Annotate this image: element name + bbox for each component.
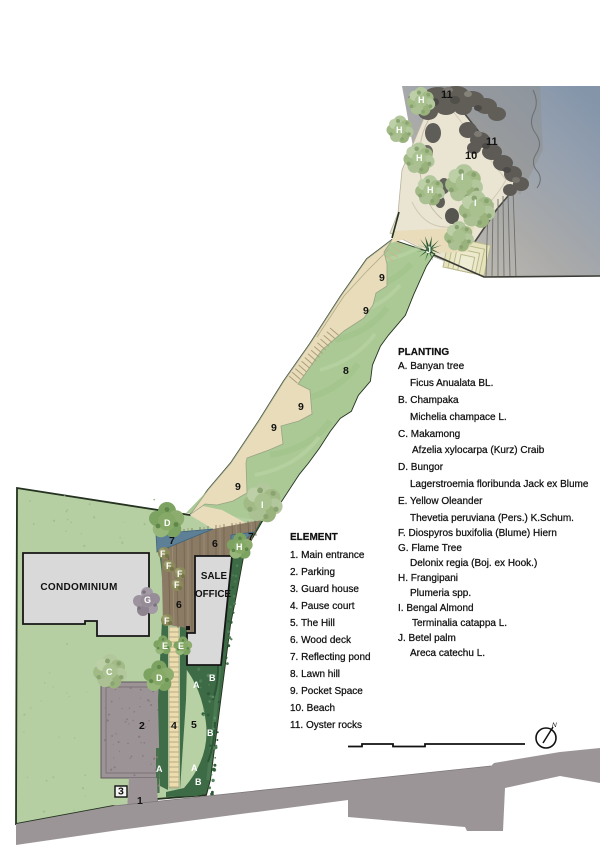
svg-text:I. Bengal Almond: I. Bengal Almond <box>398 603 474 614</box>
svg-text:D. Bungor: D. Bungor <box>398 462 444 473</box>
svg-text:SALE: SALE <box>201 571 228 582</box>
svg-text:A: A <box>193 680 200 690</box>
svg-text:E: E <box>178 641 184 651</box>
svg-text:1. Main entrance: 1. Main entrance <box>290 550 365 561</box>
svg-text:3. Guard house: 3. Guard house <box>290 584 359 595</box>
svg-text:C: C <box>106 667 113 677</box>
svg-text:H: H <box>427 185 434 195</box>
svg-text:11. Oyster rocks: 11. Oyster rocks <box>290 720 362 731</box>
svg-text:4. Pause court: 4. Pause court <box>290 601 355 612</box>
svg-text:H: H <box>418 95 425 105</box>
svg-text:I: I <box>474 198 477 208</box>
svg-text:A: A <box>156 764 163 774</box>
svg-text:B: B <box>207 728 214 738</box>
svg-text:E: E <box>162 641 168 651</box>
svg-text:7: 7 <box>169 535 175 547</box>
svg-text:Plumeria spp.: Plumeria spp. <box>410 588 471 599</box>
svg-text:8: 8 <box>343 365 349 377</box>
svg-text:F: F <box>174 580 180 590</box>
svg-text:Delonix regia (Boj. ex Hook.): Delonix regia (Boj. ex Hook.) <box>410 558 537 569</box>
svg-text:D: D <box>164 518 171 528</box>
svg-text:Areca catechu L.: Areca catechu L. <box>410 648 485 659</box>
svg-text:CONDOMINIUM: CONDOMINIUM <box>40 582 117 593</box>
svg-text:9: 9 <box>363 305 369 317</box>
svg-text:11: 11 <box>486 136 498 148</box>
svg-text:9: 9 <box>235 481 241 493</box>
svg-text:F: F <box>164 616 170 626</box>
svg-text:A. Banyan tree: A. Banyan tree <box>398 361 465 372</box>
svg-text:5: 5 <box>191 719 197 731</box>
svg-text:9. Pocket Space: 9. Pocket Space <box>290 686 363 697</box>
svg-text:5. The Hill: 5. The Hill <box>290 618 335 629</box>
svg-text:F: F <box>166 561 172 571</box>
svg-text:4: 4 <box>171 720 177 732</box>
svg-text:F. Diospyros buxifolia (Blume): F. Diospyros buxifolia (Blume) Hiern <box>398 528 557 539</box>
svg-text:G: G <box>144 595 151 605</box>
svg-text:6: 6 <box>212 538 218 550</box>
svg-text:H: H <box>416 153 423 163</box>
svg-text:B. Champaka: B. Champaka <box>398 395 459 406</box>
svg-text:11: 11 <box>441 89 453 101</box>
svg-text:J. Betel palm: J. Betel palm <box>398 633 456 644</box>
svg-text:Ficus Anualata BL.: Ficus Anualata BL. <box>410 378 493 389</box>
svg-text:Lagerstroemia floribunda Jack: Lagerstroemia floribunda Jack ex Blume <box>410 479 589 490</box>
svg-text:Thevetia peruviana (Pers.) K.S: Thevetia peruviana (Pers.) K.Schum. <box>410 513 574 524</box>
svg-text:I: I <box>461 172 464 182</box>
svg-text:D: D <box>156 673 163 683</box>
svg-text:6. Wood deck: 6. Wood deck <box>290 635 352 646</box>
svg-text:6: 6 <box>176 599 182 611</box>
svg-text:9: 9 <box>379 272 385 284</box>
svg-text:A: A <box>191 763 198 773</box>
svg-text:PLANTING: PLANTING <box>398 347 449 358</box>
svg-text:B: B <box>195 777 202 787</box>
svg-text:I: I <box>261 500 264 510</box>
svg-text:H: H <box>396 125 403 135</box>
svg-text:E. Yellow Oleander: E. Yellow Oleander <box>398 496 483 507</box>
svg-text:H: H <box>236 542 243 552</box>
svg-text:C. Makamong: C. Makamong <box>398 429 460 440</box>
svg-text:1: 1 <box>137 795 143 807</box>
svg-text:G. Flame Tree: G. Flame Tree <box>398 543 462 554</box>
svg-text:9: 9 <box>298 401 304 413</box>
svg-text:H. Frangipani: H. Frangipani <box>398 573 458 584</box>
svg-text:7. Reflecting pond: 7. Reflecting pond <box>290 652 371 663</box>
svg-text:10: 10 <box>465 150 477 162</box>
svg-text:Afzelia xylocarpa (Kurz) Craib: Afzelia xylocarpa (Kurz) Craib <box>412 445 545 456</box>
svg-text:9: 9 <box>271 422 277 434</box>
svg-text:B: B <box>209 673 216 683</box>
svg-text:J: J <box>426 245 431 255</box>
svg-text:8. Lawn hill: 8. Lawn hill <box>290 669 340 680</box>
svg-text:ELEMENT: ELEMENT <box>290 532 338 543</box>
svg-text:F: F <box>177 569 183 579</box>
svg-text:10. Beach: 10. Beach <box>290 703 335 714</box>
svg-text:3: 3 <box>118 786 124 798</box>
svg-text:Michelia champace L.: Michelia champace L. <box>410 412 507 423</box>
svg-text:OFFICE: OFFICE <box>195 589 231 600</box>
svg-text:Terminalia catappa L.: Terminalia catappa L. <box>412 618 507 629</box>
svg-text:7: 7 <box>248 531 254 543</box>
svg-text:F: F <box>160 549 166 559</box>
svg-text:N: N <box>552 722 557 729</box>
svg-text:2: 2 <box>139 720 145 732</box>
svg-text:2. Parking: 2. Parking <box>290 567 335 578</box>
